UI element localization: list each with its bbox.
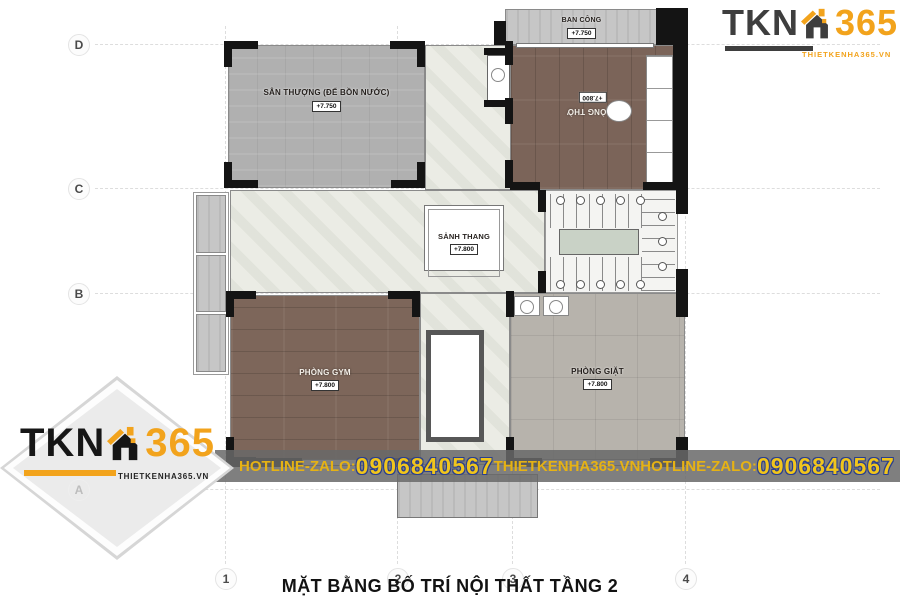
stair-step-circle (616, 280, 625, 289)
logo-tkn-text: TKN (20, 424, 105, 462)
void-skylight (426, 330, 484, 442)
logo-365-text: 365 (835, 6, 898, 40)
planter-block (196, 255, 226, 313)
hotline-bar: HOTLINE-ZALO: 0906840567 THIETKENHA365.V… (215, 450, 900, 482)
room-phong-gym: PHÒNG GYM +7.800 (230, 295, 420, 463)
washer-icon (514, 296, 540, 316)
wall-segment (224, 180, 258, 188)
planter-strip (193, 192, 229, 375)
wall-segment (673, 45, 688, 190)
washer-icon (543, 296, 569, 316)
room-label: SẢNH THANG (438, 231, 490, 243)
wall-segment (538, 271, 546, 293)
stair-step-circle (556, 280, 565, 289)
logo-website-text: THIETKENHA365.VN (802, 50, 891, 59)
stair-step-circle (636, 280, 645, 289)
sanh-thang-label-box: SẢNH THANG +7.800 (424, 205, 504, 271)
stair-step-circle (636, 196, 645, 205)
level-tag: +7.750 (567, 28, 595, 39)
level-tag: +7.750 (312, 101, 340, 112)
floor-plan-sheet: D C B A 1 2 3 4 BAN CÔNG +7.750 SÂN THƯỢ… (0, 0, 900, 603)
wall-segment (676, 269, 688, 293)
grid-row-label-a: A (68, 479, 90, 501)
house-icon (800, 8, 834, 40)
watermark-logo: TKN 365 THIETKENHA365.VN (20, 424, 220, 488)
room-label: BAN CÔNG (562, 15, 602, 26)
planter-block (196, 195, 226, 253)
wall-segment (506, 291, 514, 317)
hotline-label-1: HOTLINE-ZALO: (239, 458, 356, 475)
planter-block (196, 314, 226, 372)
grid-row-label-d: D (68, 34, 90, 56)
level-tag: +7.800 (450, 244, 478, 255)
stair-step-circle (658, 262, 667, 271)
wall-segment (388, 291, 420, 299)
wall-segment (676, 190, 688, 214)
stair-step-circle (576, 196, 585, 205)
stair-step-circle (658, 212, 667, 221)
wall-segment (484, 100, 510, 107)
wall-segment (391, 180, 425, 188)
logo-365-text: 365 (145, 424, 215, 462)
stair-landing (559, 229, 639, 255)
window-segment (516, 43, 654, 48)
stair-step-circle (616, 196, 625, 205)
hotline-label-2: HOTLINE-ZALO: (640, 458, 757, 475)
toilet-icon (491, 68, 505, 82)
room-label: PHÒNG GYM (299, 367, 351, 380)
hotline-website: THIETKENHA365.VN (494, 458, 641, 475)
wall-segment (643, 182, 675, 190)
grid-row-label-c: C (68, 178, 90, 200)
altar-counter (646, 55, 673, 185)
level-tag: +7.800 (578, 92, 606, 103)
logo-website-text: THIETKENHA365.VN (118, 472, 209, 481)
house-icon (106, 426, 144, 462)
room-label: SÂN THƯỢNG (ĐỂ BỒN NƯỚC) (264, 87, 390, 100)
logo-tkn-text: TKN (722, 6, 799, 40)
sheet-title: MẶT BẰNG BỐ TRÍ NỘI THẤT TẦNG 2 (0, 576, 900, 597)
hotline-phone-2: 0906840567 (757, 453, 895, 480)
grid-row-label-b: B (68, 283, 90, 305)
wall-segment (417, 41, 425, 67)
stair-step-circle (556, 196, 565, 205)
logo-underline (24, 470, 116, 476)
logo-underline (725, 46, 813, 51)
wall-segment (224, 41, 232, 67)
wall-segment (510, 182, 540, 190)
stair-step-circle (658, 237, 667, 246)
room-phong-giat: PHÒNG GIẶT +7.800 (510, 293, 685, 463)
stair-step-circle (576, 280, 585, 289)
stair-step-circle (596, 280, 605, 289)
wall-segment (656, 8, 688, 45)
level-tag: +7.800 (311, 380, 339, 391)
wall-segment (226, 291, 256, 299)
hotline-phone-1: 0906840567 (356, 453, 494, 480)
brand-logo: TKN 365 THIETKENHA365.VN (722, 6, 900, 68)
room-san-thuong: SÂN THƯỢNG (ĐỂ BỒN NƯỚC) +7.750 (228, 45, 425, 188)
wall-segment (538, 190, 546, 212)
wall-segment (676, 291, 688, 317)
room-label: PHÒNG GIẶT (571, 366, 624, 379)
stair-step-circle (596, 196, 605, 205)
round-table-icon (606, 100, 632, 122)
wall-segment (484, 48, 510, 55)
level-tag: +7.800 (583, 379, 611, 390)
